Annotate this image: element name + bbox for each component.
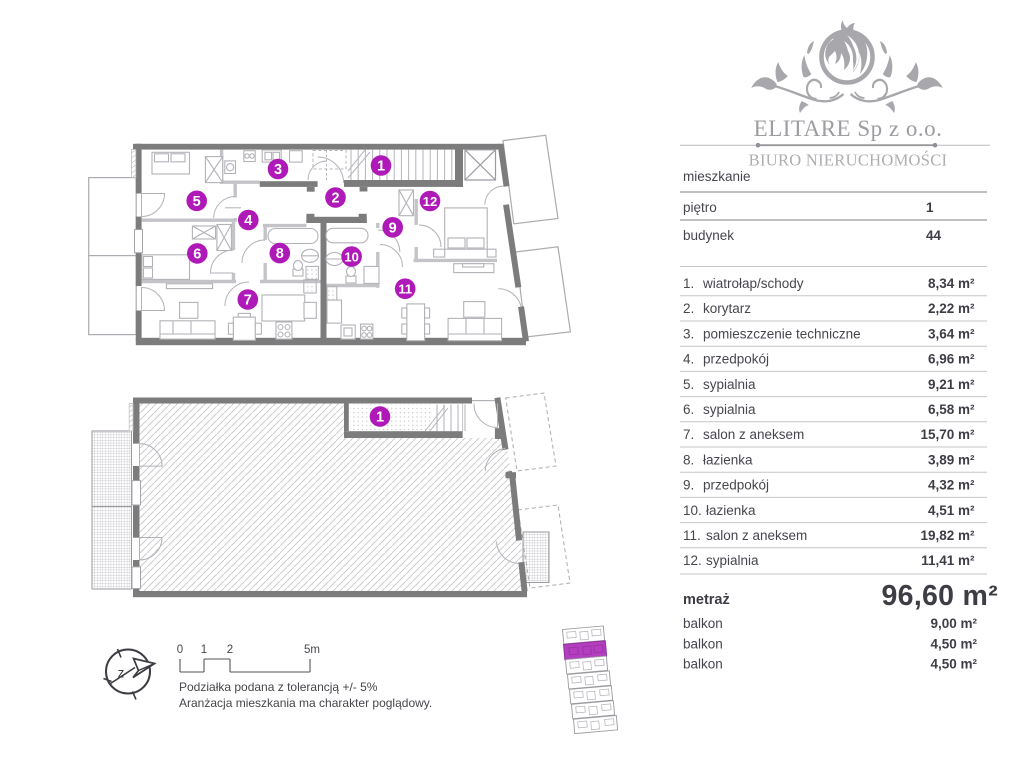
svg-text:7.: 7.	[683, 427, 694, 442]
svg-text:budynek: budynek	[683, 228, 734, 243]
svg-text:piętro: piętro	[683, 200, 717, 215]
svg-text:6: 6	[193, 246, 201, 262]
svg-text:1: 1	[201, 644, 207, 656]
svg-text:salon z aneksem: salon z aneksem	[706, 528, 807, 543]
svg-text:ELITARE Sp z o.o.: ELITARE Sp z o.o.	[754, 116, 943, 141]
svg-text:5.: 5.	[683, 377, 694, 392]
svg-text:balkon: balkon	[683, 616, 723, 631]
svg-text:0: 0	[177, 644, 183, 656]
svg-text:19,82 m²: 19,82 m²	[920, 528, 975, 543]
svg-text:11: 11	[398, 282, 412, 297]
svg-text:balkon: balkon	[683, 657, 723, 672]
svg-text:sypialnia: sypialnia	[703, 377, 756, 392]
svg-text:4,50 m²: 4,50 m²	[930, 657, 977, 672]
svg-text:BIURO NIERUCHOMOŚCI: BIURO NIERUCHOMOŚCI	[749, 151, 948, 170]
svg-text:sypialnia: sypialnia	[703, 402, 756, 417]
svg-text:wiatrołap/schody: wiatrołap/schody	[702, 276, 804, 291]
svg-text:1: 1	[376, 410, 384, 426]
svg-text:1.: 1.	[683, 276, 694, 291]
svg-text:9.: 9.	[683, 478, 694, 493]
svg-text:łazienka: łazienka	[703, 452, 753, 467]
svg-text:11,41 m²: 11,41 m²	[921, 553, 975, 568]
svg-text:8: 8	[276, 246, 284, 262]
svg-text:7: 7	[244, 293, 252, 309]
svg-text:3.: 3.	[683, 326, 694, 341]
svg-text:przedpokój: przedpokój	[703, 352, 769, 367]
svg-text:sypialnia: sypialnia	[706, 553, 759, 568]
svg-text:metraż: metraż	[683, 592, 730, 608]
svg-text:6,58 m²: 6,58 m²	[928, 402, 975, 417]
svg-text:96,60 m²: 96,60 m²	[882, 580, 998, 612]
svg-text:przedpokój: przedpokój	[703, 478, 769, 493]
svg-text:4,32 m²: 4,32 m²	[928, 478, 975, 493]
svg-text:12.: 12.	[683, 553, 702, 568]
svg-text:4: 4	[244, 213, 252, 229]
svg-text:5m: 5m	[304, 644, 320, 656]
svg-text:4.: 4.	[683, 352, 694, 367]
svg-text:salon z aneksem: salon z aneksem	[703, 427, 804, 442]
svg-text:z: z	[118, 666, 125, 681]
svg-text:9: 9	[389, 220, 397, 236]
svg-text:3,64 m²: 3,64 m²	[928, 326, 975, 341]
svg-text:2,22 m²: 2,22 m²	[928, 301, 975, 316]
svg-text:12: 12	[423, 194, 437, 209]
svg-text:5: 5	[193, 194, 201, 210]
svg-text:9,00 m²: 9,00 m²	[930, 616, 977, 631]
svg-text:8,34 m²: 8,34 m²	[928, 276, 975, 291]
svg-text:1: 1	[926, 200, 934, 215]
svg-text:pomieszczenie techniczne: pomieszczenie techniczne	[703, 326, 861, 341]
svg-text:2: 2	[331, 191, 339, 207]
svg-text:4,50 m²: 4,50 m²	[930, 637, 977, 652]
svg-text:3,89 m²: 3,89 m²	[928, 452, 975, 467]
svg-text:2.: 2.	[683, 301, 694, 316]
svg-text:6.: 6.	[683, 402, 694, 417]
svg-text:44: 44	[926, 228, 942, 243]
svg-text:łazienka: łazienka	[706, 503, 756, 518]
svg-text:mieszkanie: mieszkanie	[683, 169, 751, 184]
svg-text:6,96 m²: 6,96 m²	[928, 352, 975, 367]
svg-text:Aranżacja mieszkania ma charak: Aranżacja mieszkania ma charakter pogląd…	[179, 696, 432, 710]
svg-text:1: 1	[377, 159, 385, 175]
svg-text:11.: 11.	[683, 528, 701, 543]
svg-text:10: 10	[344, 250, 358, 265]
svg-text:2: 2	[227, 644, 233, 656]
svg-text:10.: 10.	[683, 503, 702, 518]
svg-text:balkon: balkon	[683, 637, 723, 652]
svg-text:Podziałka podana z tolerancją: Podziałka podana z tolerancją +/- 5%	[179, 680, 378, 694]
svg-text:9,21 m²: 9,21 m²	[928, 377, 975, 392]
svg-text:korytarz: korytarz	[703, 301, 751, 316]
svg-text:4,51 m²: 4,51 m²	[928, 503, 975, 518]
svg-text:3: 3	[274, 162, 282, 178]
svg-text:8.: 8.	[683, 452, 694, 467]
svg-text:15,70 m²: 15,70 m²	[920, 427, 975, 442]
